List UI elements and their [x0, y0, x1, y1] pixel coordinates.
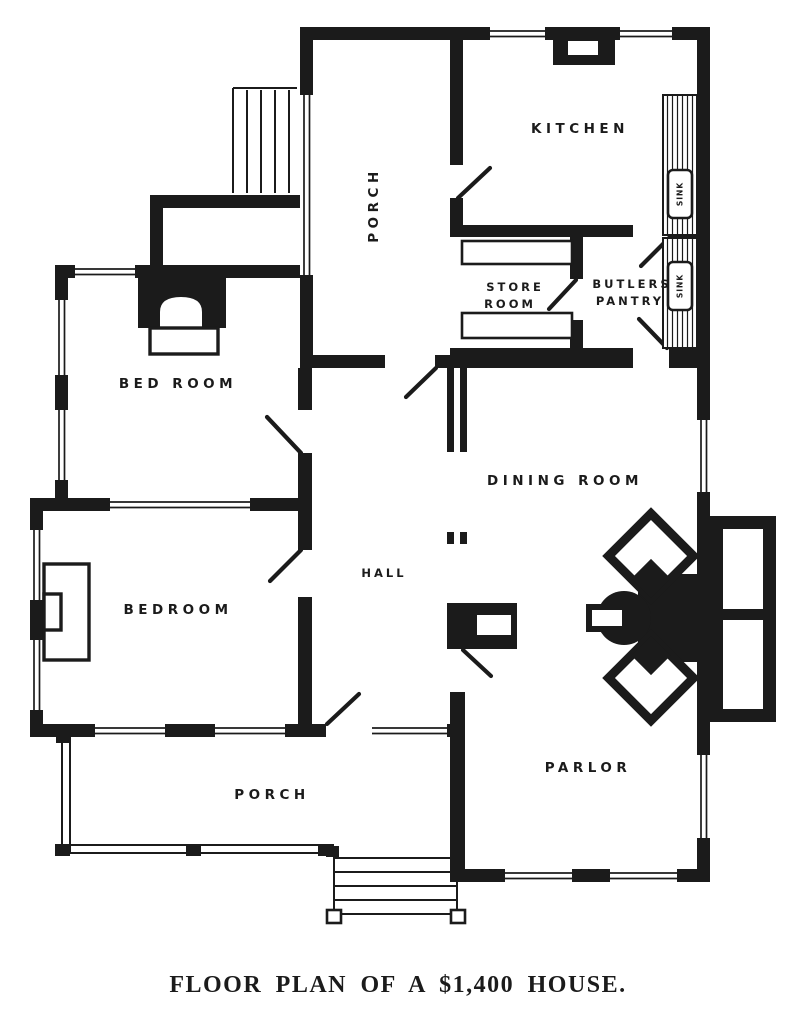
rear-stairs — [233, 88, 297, 193]
caption-title: FLOOR PLAN OF A $1,400 HOUSE. — [169, 972, 626, 998]
floor-plan-page: SINK SINK — [0, 0, 797, 1024]
room-label-store-room-2: ROOM — [484, 297, 536, 311]
entry-steps — [326, 846, 465, 923]
room-label-dining-room: DINING ROOM — [487, 473, 643, 489]
bedroom-closet — [44, 564, 89, 660]
window — [490, 27, 545, 40]
floor-plan-drawing: SINK SINK — [0, 0, 797, 1024]
window — [75, 265, 135, 278]
front-door-threshold — [372, 724, 447, 737]
window — [55, 410, 68, 480]
walls — [30, 27, 710, 882]
sink-label-pantry: SINK — [676, 274, 685, 298]
window — [620, 27, 672, 40]
hall-dining-partition — [447, 360, 517, 649]
kitchen-counter: SINK — [663, 95, 697, 235]
room-label-store-room-1: STORE — [486, 280, 544, 294]
sink-label-kitchen: SINK — [676, 182, 685, 206]
room-label-bed-room-lower: BEDROOM — [124, 602, 233, 618]
window — [30, 530, 43, 600]
bedroom-chimney — [138, 278, 226, 354]
window — [505, 869, 572, 882]
fireplace-chimney — [586, 514, 776, 722]
window — [697, 420, 710, 492]
room-label-kitchen: KITCHEN — [531, 121, 629, 137]
room-label-bed-room-upper: BED ROOM — [119, 376, 237, 392]
pantry-counter: SINK — [663, 238, 697, 348]
window — [30, 640, 43, 710]
room-label-porch-upper: PORCH — [366, 167, 382, 242]
room-labels: KITCHEN PORCH STORE ROOM BUTLERS PANTRY … — [119, 121, 672, 803]
room-label-hall: HALL — [361, 566, 406, 580]
window — [215, 724, 285, 737]
windows — [30, 27, 710, 882]
partition-opening — [110, 498, 250, 511]
window — [300, 95, 313, 275]
kitchen-chimney — [553, 27, 615, 65]
room-label-porch-lower: PORCH — [234, 787, 309, 803]
window — [55, 300, 68, 375]
room-label-butlers-pantry-1: BUTLERS — [592, 277, 671, 291]
window — [95, 724, 165, 737]
window — [610, 869, 677, 882]
room-label-butlers-pantry-2: PANTRY — [596, 294, 664, 308]
room-label-parlor: PARLOR — [545, 760, 632, 776]
window — [697, 755, 710, 838]
